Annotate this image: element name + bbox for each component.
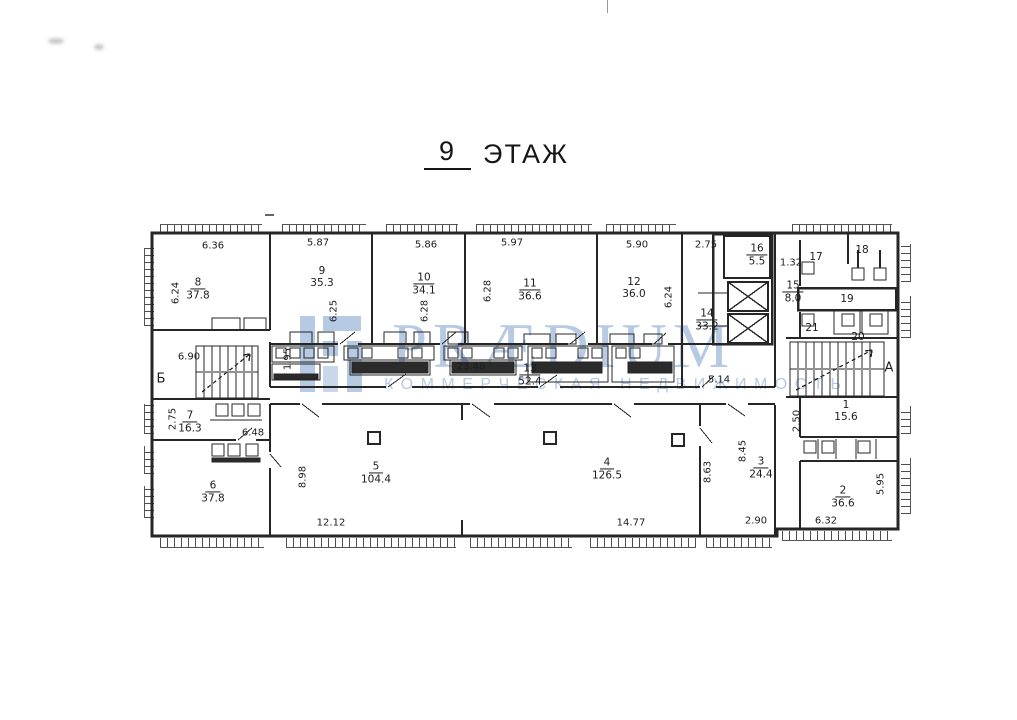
- dim-label: 6.28: [420, 300, 431, 322]
- page-title: 9 ЭТАЖ: [424, 136, 569, 170]
- dim-label: 6.90: [178, 352, 200, 363]
- dim-label: 6.24: [664, 286, 675, 308]
- dim-label: 6.25: [329, 300, 340, 322]
- dim-label: 6.48: [242, 428, 264, 439]
- floor-word: ЭТАЖ: [483, 139, 569, 170]
- pencil-mark: [48, 38, 64, 44]
- room-label-19: 19: [836, 293, 857, 305]
- pencil-mark: [94, 44, 104, 50]
- dim-label: 23.48: [457, 362, 486, 373]
- room-label-1: 115.6: [834, 399, 857, 423]
- room-label-15: 158.0: [782, 279, 803, 304]
- room-label-16: 165.5: [746, 242, 767, 267]
- dim-label: 12.12: [317, 518, 346, 529]
- room-label-7: 716.3: [178, 409, 201, 434]
- dim-label: 2.75: [168, 408, 179, 430]
- dim-label: 5.14: [708, 375, 730, 386]
- scan-dash-artifact: [265, 214, 274, 216]
- room-label-2: 236.6: [831, 484, 854, 509]
- room-label-9: 935.3: [310, 265, 333, 289]
- axis-label-a: А: [885, 361, 894, 376]
- room-label-18: 18: [851, 244, 872, 256]
- dim-label: 6.24: [171, 282, 182, 304]
- dim-label: 6.36: [202, 241, 224, 252]
- dim-label: 5.97: [501, 238, 523, 249]
- dim-label: 6.28: [483, 280, 494, 302]
- dim-label: 2.75: [695, 240, 717, 251]
- room-label-21: 21: [801, 322, 822, 334]
- room-label-20: 20: [847, 331, 868, 343]
- room-label-5: 5104.4: [361, 460, 391, 485]
- room-label-3: 324.4: [749, 455, 772, 480]
- dim-label: 5.95: [876, 473, 887, 495]
- scan-line-artifact: [607, 0, 608, 13]
- dim-label: 8.45: [738, 440, 749, 462]
- axis-label-b: Б: [157, 372, 166, 387]
- dim-label: 6.32: [815, 516, 837, 527]
- dim-label: 2.90: [745, 516, 767, 527]
- floor-number: 9: [424, 136, 471, 170]
- dim-label: 5.87: [307, 238, 329, 249]
- dim-label: 2.50: [792, 410, 803, 432]
- room-label-14: 1433.2: [695, 307, 718, 332]
- room-label-8: 837.8: [186, 276, 209, 301]
- room-label-10: 1034.1: [412, 271, 435, 296]
- room-label-4: 4126.5: [592, 456, 622, 481]
- scanned-floor-plan-page: PRÆDIUM КОММЕРЧЕСКАЯ НЕДВИЖИМОСТЬ 9 ЭТАЖ: [0, 0, 1017, 720]
- dim-label: 1.32: [780, 258, 802, 269]
- dim-label: 8.63: [703, 461, 714, 483]
- dim-label: 1.95: [283, 348, 294, 370]
- room-label-6: 637.8: [201, 479, 224, 504]
- room-label-12: 1236.0: [622, 276, 645, 300]
- dim-label: 5.90: [626, 240, 648, 251]
- room-label-13: 1352.4: [518, 362, 541, 387]
- dim-label: 8.98: [298, 466, 309, 488]
- dim-label: 14.77: [617, 518, 646, 529]
- dim-label: 5.86: [415, 240, 437, 251]
- room-label-11: 1136.6: [518, 277, 541, 302]
- plan-labels: 837.8 935.3 1034.1 1136.6 1236.0 165.5 1…: [0, 0, 1017, 720]
- room-label-17: 17: [805, 251, 826, 263]
